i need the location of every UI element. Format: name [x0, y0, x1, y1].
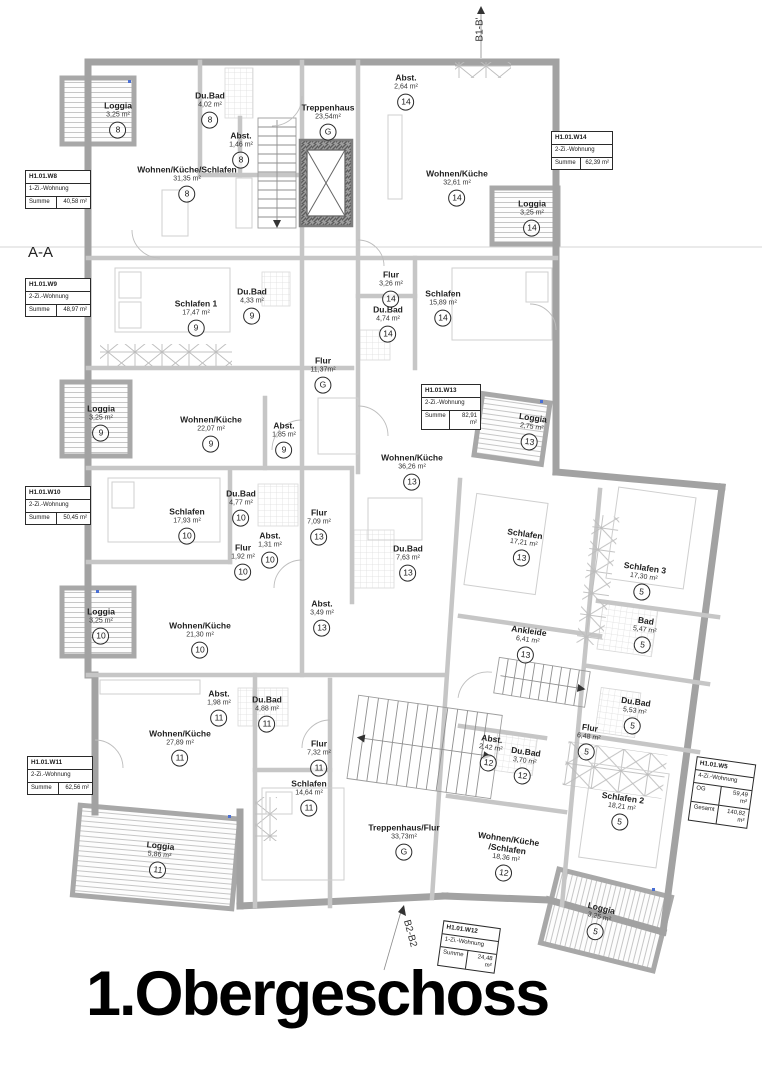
- unit-number-circle: 5: [633, 635, 652, 654]
- unit-number-circle: 5: [577, 742, 596, 761]
- apartment-type: 2-Zi.-Wohnung: [552, 145, 612, 158]
- room-name: Flur: [310, 357, 335, 367]
- area-value: 40,58 m²: [57, 197, 90, 209]
- room-area: 1,85 m²: [272, 431, 296, 439]
- apartment-id: H1.01.W14: [552, 132, 612, 145]
- unit-number-circle: 10: [192, 641, 209, 658]
- room-label-schlafen-13: Schlafen17,21 m²13: [503, 527, 543, 568]
- room-name: Du.Bad: [393, 545, 423, 555]
- room-area: 4,88 m²: [252, 705, 282, 713]
- unit-number-circle: 13: [400, 564, 417, 581]
- unit-number-circle: 12: [494, 863, 513, 882]
- room-name: Du.Bad: [252, 696, 282, 706]
- room-label-schlafen-1-9: Schlafen 117,47 m²9: [175, 300, 218, 337]
- room-name: Schlafen: [425, 290, 460, 300]
- apartment-area-row: Summe50,45 m²: [26, 513, 90, 525]
- unit-number-circle: 14: [397, 93, 414, 110]
- room-label-flur-G: Flur11,37m²G: [310, 357, 335, 394]
- room-area: 7,09 m²: [307, 518, 331, 526]
- apartment-area-row: Summe40,58 m²: [26, 197, 90, 209]
- room-label-abst-9: Abst.1,85 m²9: [272, 422, 296, 459]
- unit-number-circle: 11: [210, 709, 227, 726]
- apartment-area-row: Summe82,91 m²: [422, 411, 480, 429]
- room-label-abst-12: Abst.2,42 m²12: [476, 733, 505, 773]
- room-label-loggia-14: Loggia3,25 m²14: [518, 200, 546, 237]
- room-label-schlafen-14: Schlafen15,89 m²14: [425, 290, 460, 327]
- unit-number-circle: 13: [516, 645, 535, 664]
- room-label-treppenhaus-flur-G: Treppenhaus/Flur33,73m²G: [368, 824, 439, 861]
- room-area: 1,92 m²: [231, 553, 255, 561]
- unit-number-circle: 12: [513, 766, 532, 785]
- apartment-type: 2-Zi.-Wohnung: [26, 292, 90, 305]
- unit-number-circle: 10: [179, 527, 196, 544]
- room-area: 2,64 m²: [394, 83, 418, 91]
- unit-number-circle: 11: [310, 759, 327, 776]
- unit-number-circle: 10: [92, 627, 109, 644]
- room-name: Flur: [379, 271, 403, 281]
- room-area: 3,49 m²: [310, 609, 334, 617]
- apartment-id: H1.01.W9: [26, 279, 90, 292]
- room-name: Wohnen/Küche: [180, 416, 242, 426]
- room-area: 4,33 m²: [237, 297, 267, 305]
- room-area: 11,37m²: [310, 366, 335, 374]
- room-name: Abst.: [272, 422, 296, 432]
- area-value: 140,82 m²: [717, 805, 749, 827]
- room-label-du-bad-12: Du.Bad3,70 m²12: [507, 746, 542, 787]
- area-label: Summe: [422, 411, 450, 429]
- room-label-loggia-8: Loggia3,25 m²8: [104, 102, 132, 139]
- area-label: Summe: [26, 305, 57, 317]
- area-label: Summe: [26, 197, 57, 209]
- unit-number-circle: 13: [404, 473, 421, 490]
- room-area: 3,25 m²: [518, 209, 546, 217]
- unit-number-circle: 5: [610, 812, 629, 831]
- apartment-info-box-h1-01-w10: H1.01.W102-Zi.-WohnungSumme50,45 m²: [25, 486, 91, 525]
- apartment-info-box-h1-01-w11: H1.01.W112-Zi.-WohnungSumme62,56 m²: [27, 756, 93, 795]
- room-label-abst-14: Abst.2,64 m²14: [394, 74, 418, 111]
- unit-number-circle: 9: [188, 319, 205, 336]
- room-area: 31,35 m²: [137, 175, 237, 183]
- room-name: Schlafen: [291, 780, 326, 790]
- room-area: 3,25 m²: [87, 414, 115, 422]
- room-area: 4,74 m²: [373, 315, 403, 323]
- unit-number-circle: 13: [520, 432, 539, 451]
- room-name: Du.Bad: [237, 288, 267, 298]
- apartment-id: H1.01.W8: [26, 171, 90, 184]
- apartment-id: H1.01.W10: [26, 487, 90, 500]
- room-label-abst-11: Abst.1,98 m²11: [207, 690, 231, 727]
- unit-number-circle: 14: [523, 219, 540, 236]
- room-label-schlafen-2-5: Schlafen 218,21 m²5: [597, 791, 644, 833]
- room-name: Abst.: [310, 600, 334, 610]
- apartment-info-box-h1-01-w13: H1.01.W132-Zi.-WohnungSumme82,91 m²: [421, 384, 481, 430]
- floor-title: 1.Obergeschoss: [86, 958, 548, 1030]
- room-labels-layer: Loggia3,25 m²8Du.Bad4,02 m²8Abst.1,46 m²…: [0, 0, 772, 1080]
- area-value: 82,91 m²: [450, 411, 480, 429]
- unit-number-circle: 8: [202, 111, 219, 128]
- room-label-du-bad-11: Du.Bad4,88 m²11: [252, 696, 282, 733]
- apartment-info-box-h1-01-w8: H1.01.W81-Zi.-WohnungSumme40,58 m²: [25, 170, 91, 209]
- room-name: Loggia: [87, 608, 115, 618]
- unit-number-circle: 9: [203, 435, 220, 452]
- section-label-b1: B1-B': [475, 17, 486, 41]
- room-label-wohnen-k-che-11: Wohnen/Küche27,89 m²11: [149, 730, 211, 767]
- room-name: Flur: [307, 509, 331, 519]
- apartment-area-row: Summe62,39 m²: [552, 158, 612, 170]
- room-label-treppenhaus-G: Treppenhaus23,54m²G: [302, 104, 355, 141]
- room-name: Loggia: [518, 200, 546, 210]
- unit-number-circle: 10: [261, 551, 278, 568]
- room-label-flur-13: Flur7,09 m²13: [307, 509, 331, 546]
- unit-number-circle: G: [320, 123, 337, 140]
- room-name: Abst.: [207, 690, 231, 700]
- room-label-loggia-13: Loggia2,75 m²13: [515, 412, 548, 452]
- room-name: Loggia: [87, 405, 115, 415]
- area-label: Gesamt: [689, 802, 720, 824]
- area-label: Summe: [28, 783, 59, 795]
- apartment-info-box-h1-01-w9: H1.01.W92-Zi.-WohnungSumme48,97 m²: [25, 278, 91, 317]
- room-label-abst-10: Abst.1,31 m²10: [258, 532, 282, 569]
- unit-number-circle: 14: [380, 325, 397, 342]
- room-area: 17,47 m²: [175, 309, 218, 317]
- apartment-type: 2-Zi.-Wohnung: [422, 398, 480, 411]
- room-label-loggia-9: Loggia3,25 m²9: [87, 405, 115, 442]
- room-name: Wohnen/Küche: [426, 170, 488, 180]
- unit-number-circle: 14: [449, 189, 466, 206]
- area-value: 62,39 m²: [581, 158, 612, 170]
- room-area: 22,07 m²: [180, 425, 242, 433]
- room-area: 3,26 m²: [379, 280, 403, 288]
- unit-number-circle: 12: [479, 753, 498, 772]
- apartment-info-box-h1-01-w14: H1.01.W142-Zi.-WohnungSumme62,39 m²: [551, 131, 613, 170]
- room-area: 3,25 m²: [87, 617, 115, 625]
- room-label-schlafen-3-5: Schlafen 317,30 m²5: [619, 561, 666, 603]
- apartment-id: H1.01.W11: [28, 757, 92, 770]
- room-area: 1,98 m²: [207, 699, 231, 707]
- room-label-du-bad-8: Du.Bad4,02 m²8: [195, 92, 225, 129]
- unit-number-circle: 11: [172, 749, 189, 766]
- unit-number-circle: 5: [585, 921, 606, 942]
- room-name: Wohnen/Küche/Schlafen: [137, 166, 237, 176]
- room-label-bad-5: Bad5,47 m²5: [630, 615, 659, 655]
- room-label-abst-8: Abst.1,46 m²8: [229, 132, 253, 169]
- room-name: Schlafen: [169, 508, 204, 518]
- room-name: Abst.: [394, 74, 418, 84]
- unit-number-circle: 11: [149, 861, 168, 880]
- room-name: Du.Bad: [195, 92, 225, 102]
- room-name: Wohnen/Küche: [381, 454, 443, 464]
- room-label-du-bad-13: Du.Bad7,63 m²13: [393, 545, 423, 582]
- room-label-flur-5: Flur6,48 m²5: [574, 722, 603, 762]
- room-area: 32,61 m²: [426, 179, 488, 187]
- room-label-du-bad-10: Du.Bad4,77 m²10: [226, 490, 256, 527]
- room-name: Du.Bad: [373, 306, 403, 316]
- room-label-schlafen-11: Schlafen14,64 m²11: [291, 780, 326, 817]
- unit-number-circle: 14: [435, 309, 452, 326]
- room-area: 7,32 m²: [307, 749, 331, 757]
- room-name: Wohnen/Küche: [149, 730, 211, 740]
- section-label-a-a: A-A: [28, 244, 53, 261]
- unit-number-circle: 9: [92, 424, 109, 441]
- room-label-ankleide-13: Ankleide6,41 m²13: [507, 624, 547, 665]
- room-area: 1,31 m²: [258, 541, 282, 549]
- unit-number-circle: 11: [301, 799, 318, 816]
- apartment-area-row: Summe48,97 m²: [26, 305, 90, 317]
- room-label-du-bad-14: Du.Bad4,74 m²14: [373, 306, 403, 343]
- unit-number-circle: G: [314, 376, 331, 393]
- room-area: 27,89 m²: [149, 739, 211, 747]
- apartment-type: 1-Zi.-Wohnung: [26, 184, 90, 197]
- room-label-schlafen-10: Schlafen17,93 m²10: [169, 508, 204, 545]
- area-label: OG: [692, 783, 723, 805]
- room-label-loggia-10: Loggia3,25 m²10: [87, 608, 115, 645]
- room-area: 15,89 m²: [425, 299, 460, 307]
- room-label-loggia-5: Loggia3,25 m²5: [580, 901, 616, 943]
- room-label-wohnen-k-che-14: Wohnen/Küche32,61 m²14: [426, 170, 488, 207]
- unit-number-circle: 13: [310, 528, 327, 545]
- apartment-type: 2-Zi.-Wohnung: [28, 770, 92, 783]
- unit-number-circle: 5: [632, 582, 651, 601]
- room-label-flur-11: Flur7,32 m²11: [307, 740, 331, 777]
- unit-number-circle: 13: [313, 619, 330, 636]
- room-name: Loggia: [104, 102, 132, 112]
- room-name: Treppenhaus/Flur: [368, 824, 439, 834]
- room-area: 4,02 m²: [195, 101, 225, 109]
- room-label-wohnen-k-che-13: Wohnen/Küche36,26 m²13: [381, 454, 443, 491]
- room-label-flur-10: Flur1,92 m²10: [231, 544, 255, 581]
- room-area: 33,73m²: [368, 833, 439, 841]
- area-label: Summe: [552, 158, 581, 170]
- apartment-id: H1.01.W13: [422, 385, 480, 398]
- room-name: Abst.: [258, 532, 282, 542]
- room-label-wohnen-k-che-9: Wohnen/Küche22,07 m²9: [180, 416, 242, 453]
- room-area: 4,77 m²: [226, 499, 256, 507]
- room-name: Abst.: [229, 132, 253, 142]
- room-area: 14,64 m²: [291, 789, 326, 797]
- room-area: 17,93 m²: [169, 517, 204, 525]
- unit-number-circle: 11: [259, 715, 276, 732]
- room-label-wohnen-k-che-12: Wohnen/Küche/Schlafen18,36 m²12: [472, 831, 540, 886]
- unit-number-circle: 8: [109, 121, 126, 138]
- apartment-type: 2-Zi.-Wohnung: [26, 500, 90, 513]
- room-name: Du.Bad: [226, 490, 256, 500]
- room-area: 1,46 m²: [229, 141, 253, 149]
- unit-number-circle: 8: [179, 185, 196, 202]
- room-label-du-bad-5: Du.Bad5,53 m²5: [617, 696, 652, 737]
- area-value: 50,45 m²: [57, 513, 90, 525]
- unit-number-circle: 10: [233, 509, 250, 526]
- room-name: Treppenhaus: [302, 104, 355, 114]
- floor-plan-sheet: Loggia3,25 m²8Du.Bad4,02 m²8Abst.1,46 m²…: [0, 0, 772, 1080]
- room-label-du-bad-9: Du.Bad4,33 m²9: [237, 288, 267, 325]
- apartment-area-row: Summe62,56 m²: [28, 783, 92, 795]
- area-value: 48,97 m²: [57, 305, 90, 317]
- room-label-wohnen-k-che-schlafen-8: Wohnen/Küche/Schlafen31,35 m²8: [137, 166, 237, 203]
- unit-number-circle: 10: [234, 563, 251, 580]
- room-label-wohnen-k-che-10: Wohnen/Küche21,30 m²10: [169, 622, 231, 659]
- room-label-abst-13: Abst.3,49 m²13: [310, 600, 334, 637]
- unit-number-circle: 13: [512, 548, 531, 567]
- unit-number-circle: G: [395, 843, 412, 860]
- unit-number-circle: 9: [244, 307, 261, 324]
- room-name: Flur: [231, 544, 255, 554]
- room-name: Schlafen 1: [175, 300, 218, 310]
- unit-number-circle: 5: [623, 716, 642, 735]
- room-area: 21,30 m²: [169, 631, 231, 639]
- room-area: 7,63 m²: [393, 554, 423, 562]
- room-name: Wohnen/Küche: [169, 622, 231, 632]
- room-label-loggia-11: Loggia5,86 m²11: [143, 840, 175, 880]
- room-area: 3,25 m²: [104, 111, 132, 119]
- room-name: Flur: [307, 740, 331, 750]
- room-label-flur-14: Flur3,26 m²14: [379, 271, 403, 308]
- area-label: Summe: [26, 513, 57, 525]
- room-area: 23,54m²: [302, 113, 355, 121]
- apartment-info-box-h1-01-w5: H1.01.W54-Zi.-WohnungOG59,49 m²Gesamt140…: [688, 756, 756, 829]
- room-area: 36,26 m²: [381, 463, 443, 471]
- area-value: 62,56 m²: [59, 783, 92, 795]
- unit-number-circle: 9: [275, 441, 292, 458]
